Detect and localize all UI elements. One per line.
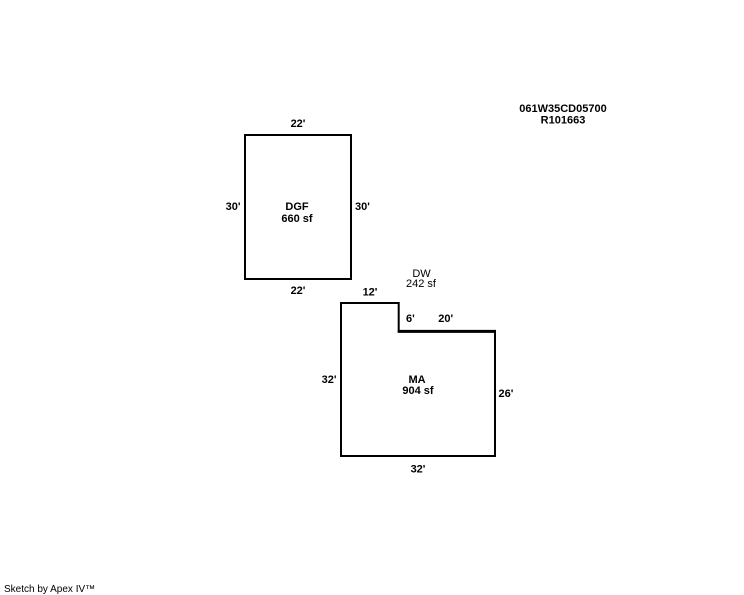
svg-text:22': 22' <box>291 118 306 130</box>
svg-text:DGF: DGF <box>285 201 309 213</box>
svg-text:061W35CD05700: 061W35CD05700 <box>519 103 606 115</box>
svg-text:6': 6' <box>406 313 415 325</box>
svg-text:242 sf: 242 sf <box>406 278 437 290</box>
svg-text:660 sf: 660 sf <box>281 213 313 225</box>
svg-text:30': 30' <box>355 201 370 213</box>
svg-text:12': 12' <box>363 287 378 299</box>
svg-text:32': 32' <box>322 374 337 386</box>
svg-text:904 sf: 904 sf <box>402 385 434 397</box>
svg-text:22': 22' <box>291 285 306 297</box>
svg-text:Sketch by Apex IV™: Sketch by Apex IV™ <box>4 584 95 595</box>
svg-text:30': 30' <box>226 201 241 213</box>
svg-text:20': 20' <box>438 313 453 325</box>
svg-text:32': 32' <box>411 464 426 476</box>
svg-text:R101663: R101663 <box>541 115 586 127</box>
svg-text:26': 26' <box>499 388 514 400</box>
